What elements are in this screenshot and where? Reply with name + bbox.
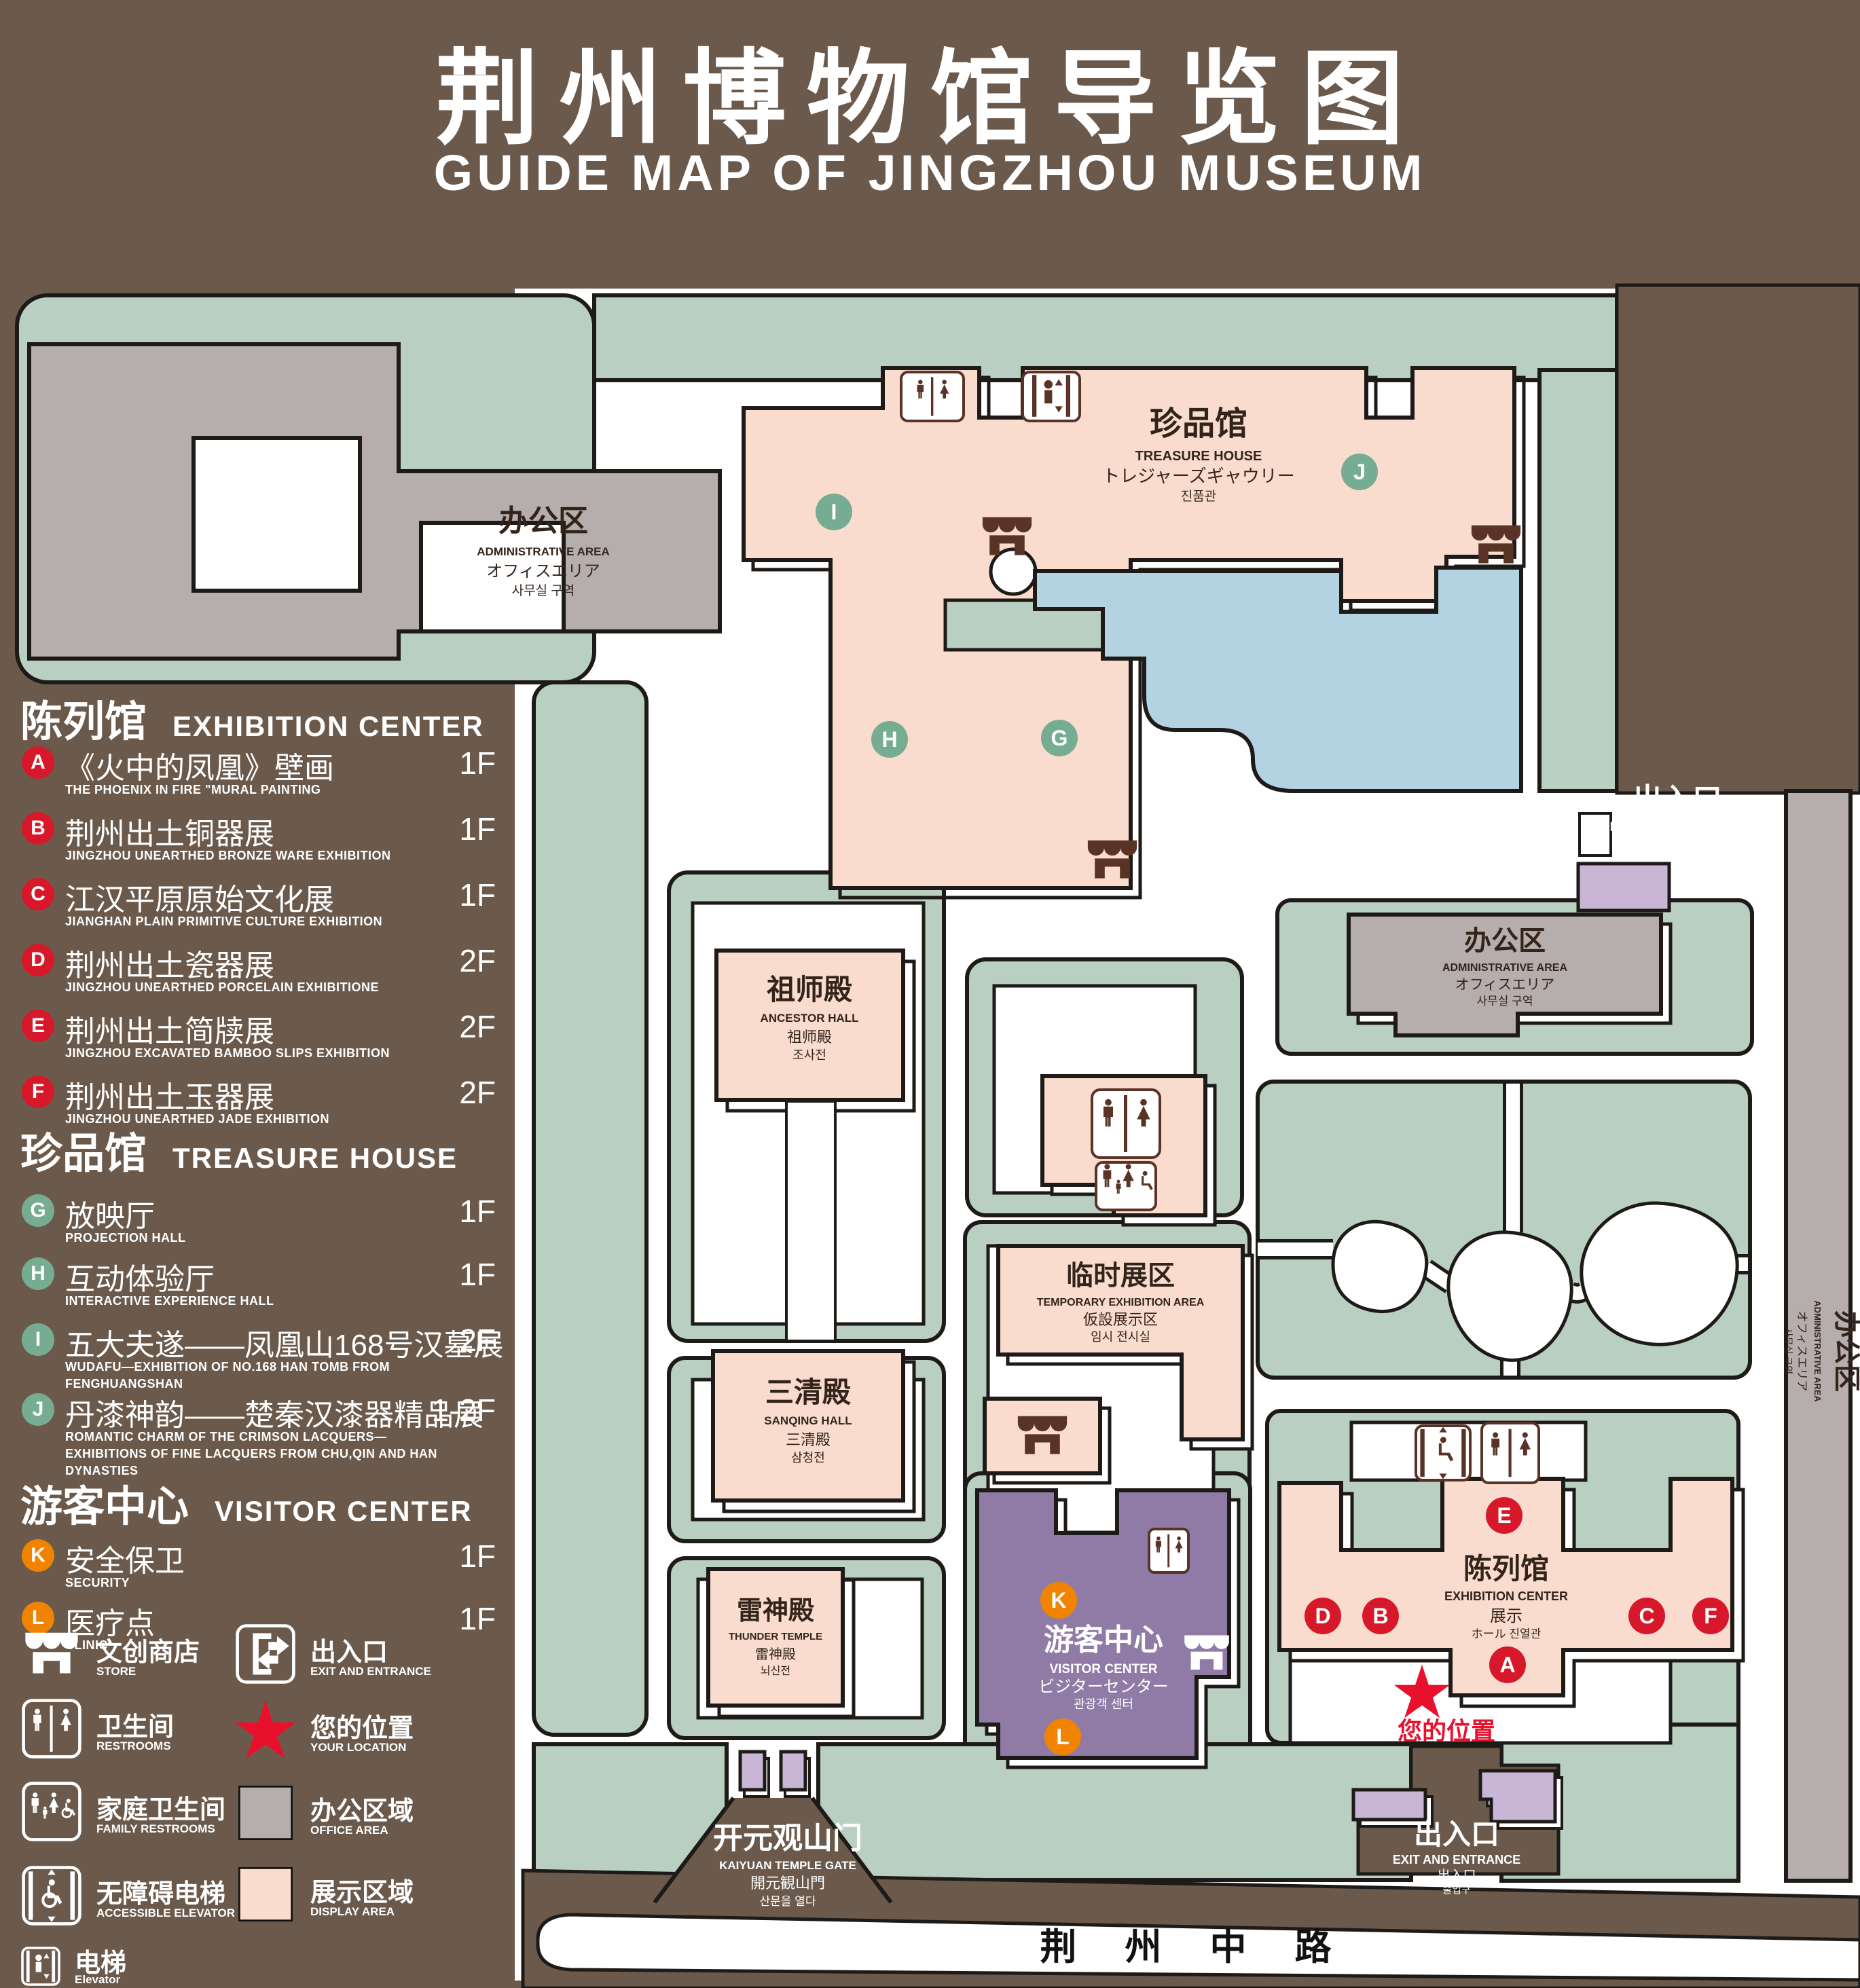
svg-text:삼청전: 삼청전	[791, 1451, 825, 1465]
marker-i: I	[816, 494, 852, 530]
svg-text:VISITOR CENTER: VISITOR CENTER	[1049, 1662, 1157, 1676]
sanqing-hall: 三清殿 SANQING HALL 三清殿 삼청전	[713, 1351, 914, 1511]
marker-d: D	[1305, 1598, 1341, 1634]
svg-text:办公区: 办公区	[1464, 926, 1546, 956]
svg-text:사무실 구역: 사무실 구역	[1477, 995, 1533, 1008]
legend-section-exhibition: 陈列馆EXHIBITION CENTER	[20, 687, 484, 735]
svg-text:조사전: 조사전	[792, 1048, 826, 1062]
svg-text:祖师殿: 祖师殿	[787, 1029, 832, 1046]
svg-text:관광객 센터: 관광객 센터	[1074, 1697, 1133, 1711]
road-label: 荆 州 中 路	[1040, 1927, 1350, 1968]
marker-e: E	[1486, 1497, 1522, 1534]
family-restrooms-icon	[1096, 1162, 1156, 1210]
display-area-swatch	[234, 1863, 297, 1926]
restrooms-icon	[1092, 1090, 1160, 1158]
guide-map-poster: 荆州博物馆导览图 GUIDE MAP OF JINGZHOU MUSEUM	[0, 0, 1860, 1988]
svg-text:THUNDER TEMPLE: THUNDER TEMPLE	[729, 1631, 822, 1642]
legend-item-g: G 放映厅 PROJECTION HALL 1F	[20, 1192, 504, 1254]
garden-pond-left	[1333, 1221, 1427, 1311]
legend-item-b: B 荆州出土铜器展 JINGZHOU UNEARTHED BRONZE WARE…	[20, 809, 504, 872]
svg-text:三清殿: 三清殿	[765, 1376, 851, 1408]
svg-text:游客中心: 游客中心	[1044, 1623, 1163, 1657]
svg-text:사무실 구역: 사무실 구역	[512, 583, 575, 598]
ne-purple-building	[1578, 864, 1669, 910]
svg-text:展示: 展示	[1490, 1607, 1522, 1625]
treasure-bite	[991, 549, 1036, 594]
svg-text:雷神殿: 雷神殿	[737, 1597, 814, 1625]
svg-text:임시 전시실: 임시 전시실	[1091, 1330, 1150, 1344]
legend-section-treasure: 珍品馆TREASURE HOUSE	[20, 1119, 458, 1166]
svg-text:출입구: 출입구	[1442, 1884, 1470, 1896]
legend-accessible-elevator: 无障碍电梯ACCESSIBLE ELEVATOR	[20, 1864, 244, 1932]
elevator-icon	[1023, 372, 1080, 421]
svg-text:진품관: 진품관	[1181, 489, 1216, 504]
marker-l: L	[1044, 1718, 1081, 1755]
svg-text:ADMINISTRATIVE AREA: ADMINISTRATIVE AREA	[477, 545, 610, 558]
svg-text:K: K	[1051, 1588, 1066, 1613]
legend-item-j: J 丹漆神韵——楚秦汉漆器精品展 ROMANTIC CHARM OF THE C…	[20, 1391, 504, 1472]
svg-text:ADMINISTRATIVE AREA: ADMINISTRATIVE AREA	[1442, 962, 1567, 974]
svg-text:A: A	[1499, 1653, 1515, 1677]
restrooms-icon	[20, 1697, 83, 1760]
svg-text:ビジターセンター: ビジターセンター	[1038, 1678, 1169, 1696]
store-icon	[20, 1623, 83, 1685]
svg-text:临时展区: 临时展区	[1066, 1261, 1175, 1291]
elevator-icon	[20, 1946, 61, 1987]
svg-text:TREASURE HOUSE: TREASURE HOUSE	[1135, 449, 1262, 464]
svg-text:EXIT AND ENTRANCE: EXIT AND ENTRANCE	[1610, 820, 1745, 834]
family-restrooms-icon	[20, 1780, 83, 1843]
svg-text:出入口: 出入口	[1414, 1818, 1499, 1850]
svg-text:E: E	[1497, 1503, 1511, 1528]
marker-g: G	[1041, 720, 1078, 756]
legend-display-area: 展示区域DISPLAY AREA	[234, 1863, 479, 1931]
restrooms-icon	[1149, 1529, 1188, 1572]
svg-text:H: H	[881, 727, 897, 752]
marker-j: J	[1341, 454, 1378, 490]
legend-restrooms: 卫生间RESTROOMS	[20, 1697, 244, 1765]
legend-store: 文创商店STORE	[20, 1623, 244, 1691]
marker-b: B	[1362, 1598, 1399, 1634]
your-location-icon	[234, 1699, 297, 1761]
legend-family-restrooms: 家庭卫生间FAMILY RESTROOMS	[20, 1780, 244, 1848]
visitor-center-building: 游客中心 VISITOR CENTER ビジターセンター 관광객 센터	[977, 1490, 1239, 1767]
admin-strip-building: 办公区 ADMINISTRATIVE AREA オフィスエリア 사무실 구역	[1783, 791, 1860, 1881]
svg-text:您的位置: 您的位置	[1398, 1717, 1495, 1745]
thunder-temple: 雷神殿 THUNDER TEMPLE 雷神殿 뇌신전	[708, 1569, 854, 1716]
accessible-elevator-icon	[20, 1864, 83, 1927]
svg-text:办公区: 办公区	[498, 504, 588, 538]
svg-text:SANQING HALL: SANQING HALL	[764, 1414, 852, 1427]
garden-pond-right	[1582, 1203, 1737, 1344]
svg-text:仮設展示区: 仮設展示区	[1083, 1311, 1158, 1328]
svg-text:オフィスエリア: オフィスエリア	[1795, 1311, 1808, 1392]
svg-text:ホール 진열관: ホール 진열관	[1472, 1627, 1542, 1640]
svg-text:EXHIBITION CENTER: EXHIBITION CENTER	[1444, 1589, 1568, 1603]
marker-a: A	[1489, 1646, 1526, 1683]
legend-item-h: H 互动体验厅 INTERACTIVE EXPERIENCE HALL 1F	[20, 1255, 504, 1317]
svg-text:J: J	[1353, 460, 1366, 484]
svg-text:ADMINISTRATIVE AREA: ADMINISTRATIVE AREA	[1812, 1300, 1823, 1402]
svg-text:B: B	[1372, 1604, 1388, 1628]
svg-text:開元観山門: 開元観山門	[750, 1875, 825, 1892]
store-building	[985, 1399, 1110, 1483]
svg-text:I: I	[831, 500, 837, 524]
svg-text:TEMPORARY EXHIBITION AREA: TEMPORARY EXHIBITION AREA	[1037, 1297, 1205, 1308]
svg-text:雷神殿: 雷神殿	[755, 1646, 796, 1662]
svg-text:办公区: 办公区	[1831, 1310, 1860, 1392]
svg-text:出入口: 出入口	[1657, 835, 1698, 851]
marker-c: C	[1628, 1598, 1665, 1634]
svg-text:ANCESTOR HALL: ANCESTOR HALL	[760, 1012, 858, 1025]
legend-item-e: E 荆州出土简牍展 JINGZHOU EXCAVATED BAMBOO SLIP…	[20, 1007, 504, 1069]
northeast-green-strip	[1539, 370, 1617, 791]
svg-text:D: D	[1315, 1604, 1330, 1628]
admin-mid-building: 办公区 ADMINISTRATIVE AREA オフィスエリア 사무실 구역	[1349, 915, 1671, 1035]
svg-text:オフィスエリア: オフィスエリア	[486, 562, 600, 581]
svg-text:사무실 구역: 사무실 구역	[1783, 1328, 1793, 1374]
svg-text:EXIT AND ENTRANCE: EXIT AND ENTRANCE	[1393, 1853, 1520, 1866]
svg-text:KAIYUAN TEMPLE GATE: KAIYUAN TEMPLE GATE	[719, 1859, 856, 1872]
svg-text:祖师殿: 祖师殿	[767, 974, 852, 1006]
ancestor-path	[786, 1101, 835, 1341]
office-area-swatch	[234, 1782, 297, 1844]
legend-section-visitor: 游客中心VISITOR CENTER	[20, 1472, 473, 1520]
accessible-elevator-icon	[1416, 1426, 1470, 1480]
svg-text:开元观山门: 开元观山门	[713, 1822, 862, 1855]
svg-text:珍品馆: 珍品馆	[1150, 406, 1247, 442]
legend-exit-entrance: 出入口EXIT AND ENTRANCE	[234, 1623, 479, 1691]
west-green-strip	[534, 682, 646, 1735]
legend-office-area: 办公区域OFFICE AREA	[234, 1782, 479, 1849]
svg-text:산문을 열다: 산문을 열다	[760, 1895, 816, 1908]
exit-entrance-icon	[234, 1623, 297, 1685]
svg-text:陈列馆: 陈列馆	[1463, 1553, 1549, 1585]
legend-item-i: I 五大夫遂——凤凰山168号汉墓展 WUDAFU—EXHIBITION OF …	[20, 1321, 504, 1383]
legend-item-d: D 荆州出土瓷器展 JINGZHOU UNEARTHED PORCELAIN E…	[20, 941, 504, 1004]
svg-text:出入口: 出入口	[1437, 1868, 1476, 1883]
legend-elevator: 电梯 Elevator	[20, 1945, 244, 1988]
legend-item-a: A 《火中的凤凰》壁画 THE PHOENIX IN FIRE "MURAL P…	[20, 743, 504, 806]
svg-text:トレジャーズギャウリー: トレジャーズギャウリー	[1102, 466, 1294, 486]
svg-text:C: C	[1639, 1604, 1654, 1628]
legend-item-c: C 江汉平原原始文化展 JIANGHAN PLAIN PRIMITIVE CUL…	[20, 875, 504, 938]
svg-text:三清殿: 三清殿	[786, 1431, 831, 1448]
svg-text:L: L	[1056, 1725, 1070, 1749]
restrooms-icon	[1482, 1423, 1539, 1483]
svg-text:出入口: 出入口	[1633, 783, 1722, 816]
legend-item-k: K 安全保卫 SECURITY 1F	[20, 1536, 504, 1599]
legend-your-location: 您的位置YOUR LOCATION	[234, 1699, 479, 1767]
marker-k: K	[1040, 1582, 1077, 1619]
marker-f: F	[1692, 1598, 1729, 1634]
svg-text:G: G	[1051, 726, 1068, 750]
marker-h: H	[871, 721, 908, 758]
svg-text:オフィスエリア: オフィスエリア	[1455, 977, 1555, 993]
svg-text:뇌신전: 뇌신전	[761, 1665, 790, 1677]
svg-text:F: F	[1704, 1604, 1717, 1628]
northeast-brown-block	[1617, 285, 1860, 793]
restrooms-icon	[901, 372, 964, 421]
